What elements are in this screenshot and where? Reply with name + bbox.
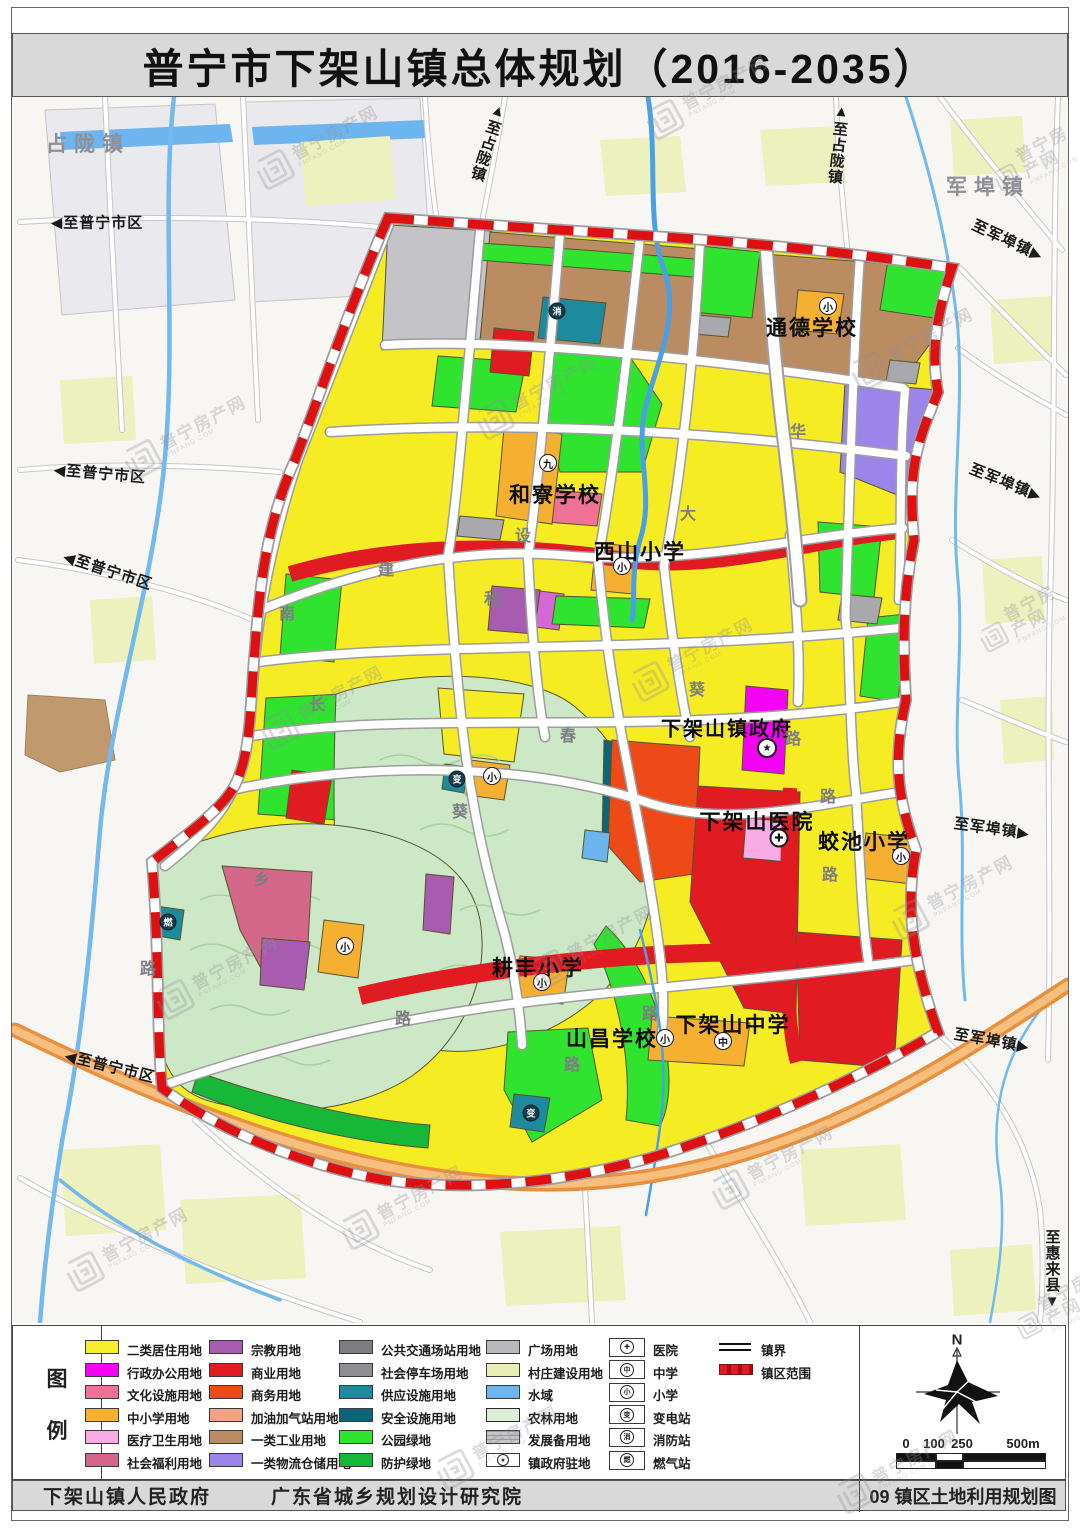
school-icon: 中 [714, 1032, 732, 1050]
road-name-label: 路 [785, 725, 801, 749]
legend-label: 村庄建设用地 [528, 1363, 603, 1382]
legend-line-item [719, 1339, 751, 1355]
legend-item [209, 1362, 243, 1378]
direction-label: ◀至普宁市区 [63, 1045, 158, 1088]
legend-swatch [486, 1385, 520, 1399]
scale-bar-segment [896, 1461, 936, 1469]
hospital-icon: ✚ [770, 829, 789, 848]
legend-label: 一类工业用地 [251, 1430, 326, 1449]
place-label: 下架山中学 [676, 1009, 791, 1039]
legend-swatch [486, 1408, 520, 1422]
legend-item [209, 1452, 243, 1468]
school-icon: 小 [656, 1029, 674, 1047]
legend-symbol-item: ✚ [609, 1339, 645, 1355]
legend-item [486, 1407, 520, 1423]
road-name-label: 大 [680, 500, 696, 524]
legend-item [209, 1339, 243, 1355]
neighbor-town-label: 军埠镇 [946, 171, 1030, 201]
legend-symbol-item: 消 [609, 1429, 645, 1445]
legend-swatch [85, 1408, 119, 1422]
scale-bar-segment [936, 1453, 963, 1461]
road-name-label: 春 [560, 722, 576, 746]
footer-credit-government: 下架山镇人民政府 [43, 1482, 211, 1509]
legend-symbol-box: ✚ [609, 1338, 645, 1357]
legend-divider [859, 1326, 860, 1481]
town-government-icon: ★ [497, 1454, 509, 1466]
legend-item [486, 1362, 520, 1378]
map-overlay: 通德学校和寮学校西山小学下架山镇政府下架山医院蛟池小学耕丰小学山昌学校下架山中学… [0, 0, 1080, 1325]
scale-tick-label: 0 [902, 1436, 909, 1451]
legend-label: 文化设施用地 [127, 1385, 202, 1404]
legend-item [209, 1407, 243, 1423]
legend-symbol-item: 中 [609, 1362, 645, 1378]
legend-swatch [339, 1408, 373, 1422]
legend-label: 公园绿地 [381, 1430, 431, 1449]
direction-label: 至军埠镇▶ [953, 812, 1032, 843]
road-name-label: 路 [822, 861, 838, 885]
legend-item [486, 1384, 520, 1400]
legend-item [85, 1384, 119, 1400]
legend-label: 农林用地 [528, 1408, 578, 1427]
legend-label: 医疗卫生用地 [127, 1430, 202, 1449]
legend-swatch [209, 1430, 243, 1444]
legend-label: 镇区范围 [761, 1363, 811, 1382]
legend-symbol-box: 燃 [609, 1451, 645, 1470]
legend-label: 商务用地 [251, 1385, 301, 1404]
road-name-label: 建 [378, 556, 394, 580]
legend-symbol-box: 中 [609, 1360, 645, 1379]
school-icon: 小 [483, 767, 501, 785]
legend-item [85, 1339, 119, 1355]
road-name-label: 南 [279, 600, 295, 624]
legend-item [339, 1339, 373, 1355]
legend-label: 宗教用地 [251, 1340, 301, 1359]
legend-panel: 图 例 二类居住用地行政办公用地文化设施用地中小学用地医疗卫生用地社会福利用地宗… [12, 1325, 1066, 1480]
legend-label: 发展备用地 [528, 1430, 591, 1449]
legend-label: 消防站 [653, 1430, 691, 1449]
road-name-label: 和 [484, 585, 500, 609]
legend-label: 社会福利用地 [127, 1453, 202, 1472]
road-name-label: 路 [564, 1051, 580, 1075]
legend-label: 变电站 [653, 1408, 691, 1427]
legend-item [339, 1362, 373, 1378]
医院-icon: ✚ [620, 1340, 634, 1354]
legend-swatch [209, 1340, 243, 1354]
neighbor-town-label: 占陇镇 [46, 128, 130, 158]
legend-label: 二类居住用地 [127, 1340, 202, 1359]
legend-item [339, 1429, 373, 1445]
place-label: 和寮学校 [509, 479, 601, 509]
road-name-label: 设 [515, 522, 531, 546]
direction-label: 至军埠镇▶ [969, 214, 1047, 265]
legend-swatch [85, 1340, 119, 1354]
变电站-icon: 变 [620, 1408, 634, 1422]
legend-item [85, 1452, 119, 1468]
legend-swatch: ★ [486, 1453, 520, 1467]
legend-label: 医院 [653, 1340, 678, 1359]
direction-label: ◀至普宁市区 [61, 546, 156, 595]
legend-label: 公共交通场站用地 [381, 1340, 481, 1359]
school-icon: 小 [533, 973, 551, 991]
school-icon: 小 [613, 557, 631, 575]
road-name-label: 乡 [254, 866, 270, 890]
road-name-label: 长 [309, 691, 325, 715]
legend-swatch [339, 1453, 373, 1467]
legend-swatch [85, 1363, 119, 1377]
town-government-icon: ★ [757, 738, 777, 758]
direction-label: ▲至占陇镇 [465, 100, 510, 184]
legend-item [486, 1429, 520, 1445]
legend-symbol-box: 小 [609, 1383, 645, 1402]
town-border-line [719, 1343, 751, 1351]
legend-label: 安全设施用地 [381, 1408, 456, 1427]
legend-label: 防护绿地 [381, 1453, 431, 1472]
legend-swatch [209, 1408, 243, 1422]
燃气站-icon: 燃 [620, 1453, 634, 1467]
legend-label: 中小学用地 [127, 1408, 190, 1427]
scale-bar-segment [963, 1453, 1046, 1461]
中学-icon: 中 [620, 1363, 634, 1377]
legend-swatch [339, 1385, 373, 1399]
scale-bar-segment [936, 1461, 963, 1469]
road-name-label: 华 [790, 418, 806, 442]
place-label: 下架山医院 [700, 806, 815, 836]
direction-label: 至军埠镇▶ [952, 1023, 1031, 1057]
utility-station-icon: 变 [449, 771, 466, 788]
legend-symbol-item: 燃 [609, 1452, 645, 1468]
legend-label: 供应设施用地 [381, 1385, 456, 1404]
legend-swatch [209, 1385, 243, 1399]
legend-swatch [339, 1340, 373, 1354]
legend-item [339, 1452, 373, 1468]
road-name-label: 路 [395, 1005, 411, 1029]
legend-item [209, 1384, 243, 1400]
utility-station-icon: 消 [549, 303, 566, 320]
footer-credit-institute: 广东省城乡规划设计研究院 [271, 1482, 523, 1509]
place-label: 山昌学校 [566, 1023, 658, 1053]
legend-label: 社会停车场用地 [381, 1363, 469, 1382]
legend-swatch [85, 1430, 119, 1444]
legend-line-item [719, 1362, 753, 1378]
legend-item: ★ [486, 1452, 520, 1468]
place-label: 通德学校 [766, 312, 858, 342]
legend-symbol-box: 消 [609, 1428, 645, 1447]
road-name-label: 路 [642, 1000, 658, 1024]
place-label: 下架山镇政府 [661, 713, 793, 742]
road-name-label: 葵 [689, 676, 705, 700]
compass-rose-icon [888, 1346, 1028, 1438]
footer-bar: 下架山镇人民政府 广东省城乡规划设计研究院 09 镇区土地利用规划图 [12, 1480, 1066, 1511]
direction-label: 至军埠镇▶ [967, 458, 1046, 506]
direction-label: ◀至普宁市区 [53, 459, 147, 488]
legend-label: 燃气站 [653, 1453, 691, 1472]
legend-item [339, 1407, 373, 1423]
legend-label: 一类物流仓储用地 [251, 1453, 351, 1472]
legend-label: 中学 [653, 1363, 678, 1382]
消防站-icon: 消 [620, 1430, 634, 1444]
legend-swatch [85, 1385, 119, 1399]
utility-station-icon: 变 [523, 1105, 540, 1122]
legend-item [339, 1384, 373, 1400]
sheet-number: 09 镇区土地利用规划图 [859, 1483, 1067, 1509]
legend-item [85, 1362, 119, 1378]
小学-icon: 小 [620, 1385, 634, 1399]
legend-sidebar-char: 例 [47, 1415, 68, 1445]
legend-item [209, 1429, 243, 1445]
legend-swatch [486, 1363, 520, 1377]
road-name-label: 路 [140, 955, 156, 979]
legend-sidebar-char: 图 [47, 1363, 68, 1393]
place-label: 西山小学 [594, 536, 686, 566]
school-icon: 小 [892, 847, 910, 865]
legend-label: 加油加气站用地 [251, 1408, 339, 1427]
legend-label: 镇界 [761, 1340, 786, 1359]
legend-swatch [339, 1430, 373, 1444]
legend-symbol-box: 变 [609, 1405, 645, 1424]
school-icon: 小 [819, 297, 837, 315]
legend-label: 广场用地 [528, 1340, 578, 1359]
direction-label: ▲至占陇镇 [823, 102, 852, 186]
school-icon: 九 [539, 454, 557, 472]
scale-tick-label: 100 [923, 1436, 945, 1451]
legend-swatch [85, 1453, 119, 1467]
legend-label: 水域 [528, 1385, 553, 1404]
legend-label: 行政办公用地 [127, 1363, 202, 1382]
legend-swatch [486, 1430, 520, 1444]
legend-item [486, 1339, 520, 1355]
legend-swatch [209, 1363, 243, 1377]
scale-tick-label: 250 [951, 1436, 973, 1451]
road-name-label: 路 [820, 783, 836, 807]
scale-bar-segment [963, 1461, 1046, 1469]
direction-label: 至惠来县▼ [1042, 1229, 1063, 1311]
legend-swatch [486, 1340, 520, 1354]
town-area-line [719, 1364, 753, 1375]
scale-bar-segment [896, 1453, 936, 1461]
legend-symbol-item: 变 [609, 1407, 645, 1423]
legend-label: 商业用地 [251, 1363, 301, 1382]
legend-item [85, 1407, 119, 1423]
utility-station-icon: 燃 [160, 914, 177, 931]
legend-swatch [339, 1363, 373, 1377]
road-name-label: 葵 [452, 798, 468, 822]
legend-label: 小学 [653, 1385, 678, 1404]
plan-sheet: 普宁市下架山镇总体规划（2016-2035） [0, 0, 1080, 1529]
legend-swatch [209, 1453, 243, 1467]
legend-item [85, 1429, 119, 1445]
legend-label: 镇政府驻地 [528, 1453, 591, 1472]
school-icon: 小 [336, 937, 354, 955]
scale-tick-label: 500m [1006, 1436, 1039, 1451]
direction-label: ◀至普宁市区 [51, 212, 144, 233]
legend-symbol-item: 小 [609, 1384, 645, 1400]
